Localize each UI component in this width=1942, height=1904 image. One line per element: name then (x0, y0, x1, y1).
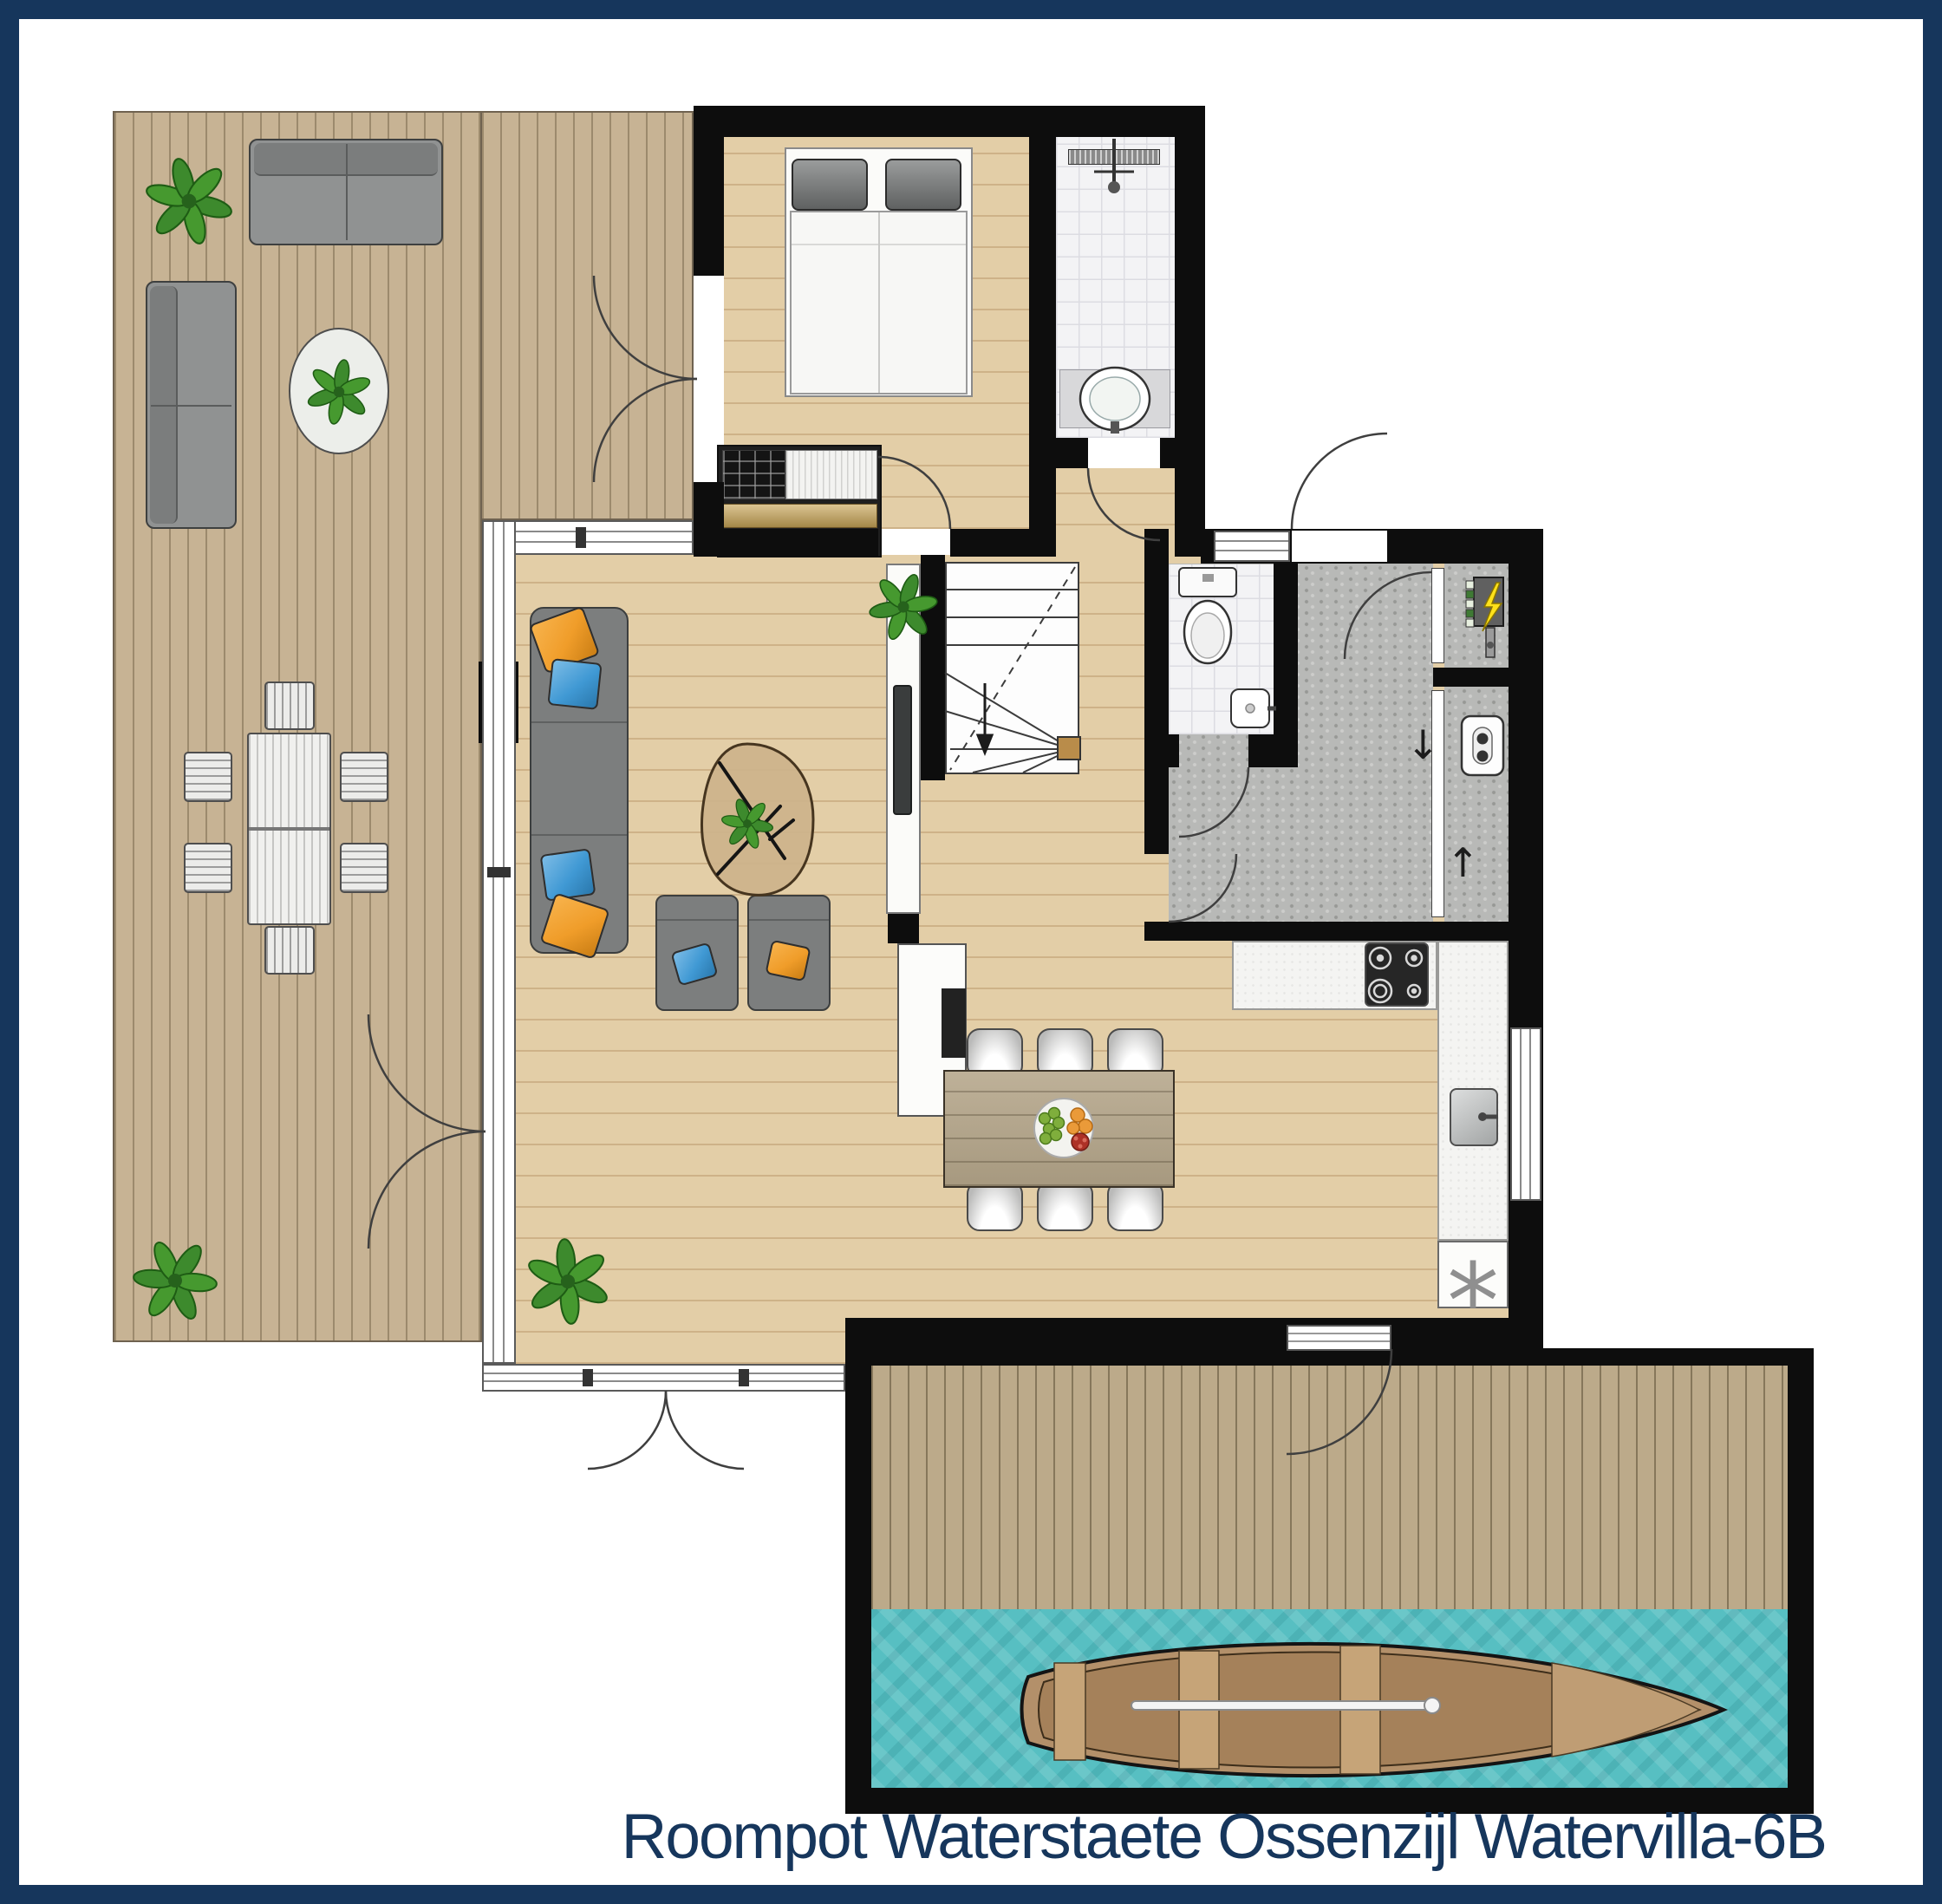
living-south-door-arc (666, 1391, 744, 1469)
plant-icon (136, 149, 243, 254)
living-deck-door-arc (368, 1131, 485, 1249)
boat-stern-bench (1054, 1663, 1085, 1760)
entry-door-arc (1292, 434, 1387, 529)
plan-detail-overlay (0, 0, 1942, 1904)
meter-closet-door-arc (1345, 572, 1431, 659)
plan-caption: Roompot Waterstaete Ossenzijl Watervilla… (622, 1801, 1826, 1873)
plant-icon (512, 1226, 624, 1336)
bathroom-door-arc (1088, 468, 1160, 540)
plant-icon (856, 559, 950, 654)
gas-hob-burners (1369, 948, 1422, 1002)
bedroom-door-arc (878, 457, 950, 529)
toilet (1179, 568, 1236, 663)
hand-basin (1231, 689, 1276, 727)
fruit-bowl (1034, 1099, 1093, 1157)
boat-bow-deck (1552, 1663, 1699, 1757)
boat (1022, 1644, 1724, 1776)
floor-plan-canvas: * ↓ ↑ (0, 0, 1942, 1904)
living-deck-door-arc (368, 1014, 485, 1131)
living-south-door-arc (588, 1391, 666, 1469)
electrical-panel (1466, 577, 1503, 657)
boiler (1462, 716, 1503, 775)
plant-icon (121, 1226, 230, 1335)
bedroom-deck-door-arc (594, 379, 697, 482)
bedroom-deck-door-arc (594, 276, 697, 379)
coffee-table (701, 744, 813, 895)
kitchen-sink-faucet (1478, 1112, 1498, 1121)
utility-door-arc (1169, 854, 1236, 922)
door-swing-arcs (368, 276, 1431, 1469)
toilet-door-arc (1179, 767, 1248, 837)
dock-door-arc (1287, 1349, 1391, 1454)
bathroom-sink (1080, 368, 1150, 434)
shower-mixer (1094, 139, 1134, 193)
plant-icon (294, 347, 384, 437)
staircase-newel (1058, 737, 1080, 760)
